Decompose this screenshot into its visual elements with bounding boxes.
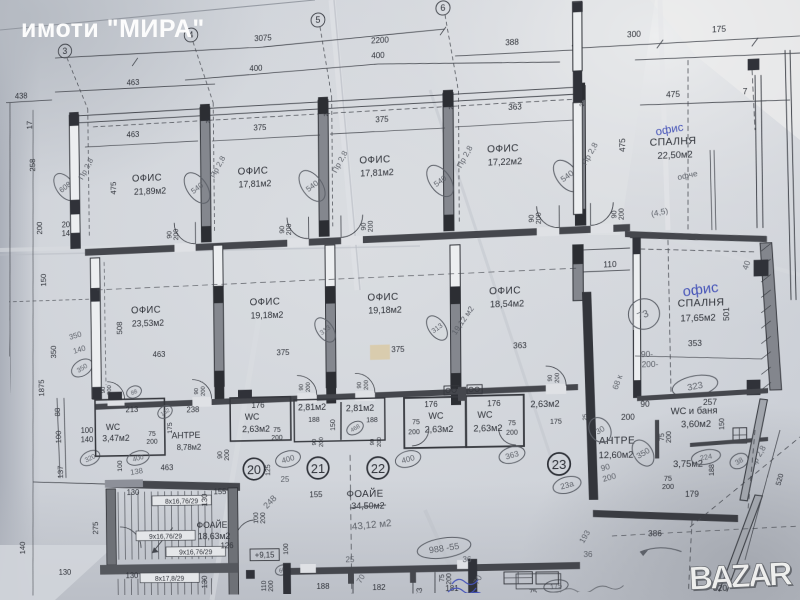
svg-text:150: 150 [330,419,337,431]
svg-text:3,75м2: 3,75м2 [673,458,703,469]
svg-text:3: 3 [63,46,68,56]
svg-text:Пр 2,8: Пр 2,8 [330,149,350,174]
svg-text:388: 388 [505,37,519,47]
svg-text:8x16,76/29: 8x16,76/29 [165,498,198,506]
svg-text:988 -55: 988 -55 [428,541,460,556]
svg-text:WC: WC [428,411,443,422]
svg-text:130: 130 [200,493,209,506]
svg-text:ФОАЙЕ: ФОАЙЕ [346,487,383,500]
svg-text:375: 375 [391,345,404,355]
svg-text:200: 200 [224,449,231,461]
svg-text:90: 90 [370,439,376,446]
svg-text:90: 90 [640,399,649,409]
svg-text:25: 25 [281,475,290,484]
svg-text:130: 130 [59,568,72,577]
svg-text:350: 350 [76,363,89,375]
svg-text:313: 313 [431,322,445,335]
svg-text:110: 110 [603,259,616,269]
svg-text:200: 200 [319,437,325,447]
svg-text:540: 540 [304,178,320,193]
svg-text:Пр 2,8: Пр 2,8 [455,144,475,169]
svg-text:323: 323 [686,379,704,393]
svg-text:ФОАЙЕ: ФОАЙЕ [197,519,228,531]
svg-text:140: 140 [18,542,27,555]
svg-text:155: 155 [309,490,322,499]
svg-text:200: 200 [260,512,267,524]
svg-text:8,78м2: 8,78м2 [177,443,202,453]
svg-text:375: 375 [375,114,388,124]
svg-text:400: 400 [281,453,296,466]
svg-text:СПАЛНЯ: СПАЛНЯ [678,297,725,310]
svg-text:36: 36 [462,555,471,564]
svg-text:182: 182 [372,583,385,592]
svg-text:19,18м2: 19,18м2 [368,304,402,315]
svg-text:17,81м2: 17,81м2 [360,167,394,179]
svg-text:150: 150 [719,418,727,430]
svg-text:WC: WC [477,409,492,420]
svg-text:179: 179 [685,489,699,499]
svg-text:475: 475 [666,89,680,99]
svg-text:25: 25 [324,110,330,117]
svg-text:200: 200 [618,208,626,220]
svg-text:200: 200 [35,221,44,234]
svg-text:68 к: 68 к [610,373,625,391]
svg-text:475: 475 [617,138,627,152]
svg-text:175: 175 [550,419,562,427]
svg-text:ОФИС: ОФИС [487,143,519,156]
svg-text:2,63м2: 2,63м2 [530,398,560,409]
svg-text:258: 258 [28,158,37,171]
svg-text:Пр 2,8: Пр 2,8 [208,154,227,179]
svg-text:188: 188 [316,582,329,591]
svg-text:150: 150 [39,274,48,287]
svg-text:70: 70 [355,573,367,585]
svg-text:200: 200 [601,471,617,484]
svg-text:20: 20 [247,462,261,477]
svg-text:200: 200 [662,484,674,492]
svg-text:90-: 90- [641,349,654,359]
svg-text:400: 400 [400,453,415,466]
svg-text:375: 375 [276,348,289,358]
svg-text:200: 200 [621,412,635,422]
svg-text:6: 6 [440,2,445,13]
svg-text:130: 130 [200,576,209,589]
svg-text:520: 520 [775,473,786,487]
svg-text:2,81м2: 2,81м2 [298,401,326,412]
svg-text:25: 25 [449,103,455,110]
svg-text:125: 125 [265,464,272,476]
svg-text:130: 130 [126,571,139,580]
svg-text:176: 176 [251,401,264,411]
svg-text:438: 438 [15,91,28,101]
svg-text:353: 353 [688,338,702,348]
svg-text:400: 400 [371,50,384,60]
svg-text:17,65м2: 17,65м2 [680,312,716,324]
svg-text:363: 363 [504,449,520,462]
svg-text:300: 300 [627,29,641,39]
svg-text:АНТРЕ: АНТРЕ [172,430,201,441]
svg-text:ОФИС: ОФИС [359,154,390,167]
svg-text:17,22м2: 17,22м2 [488,156,523,168]
svg-text:73: 73 [636,308,651,323]
svg-text:200-: 200- [642,359,659,369]
svg-text:200: 200 [306,382,312,392]
svg-text:22,50м2: 22,50м2 [657,149,693,161]
svg-text:ОФИС: ОФИС [131,304,161,316]
svg-text:475: 475 [109,181,118,194]
svg-text:275: 275 [91,522,100,535]
svg-text:1875: 1875 [37,379,46,396]
svg-text:75: 75 [148,431,156,438]
svg-text:90: 90 [194,388,200,395]
svg-text:18,63м2: 18,63м2 [198,531,231,542]
svg-text:200: 200 [268,580,275,592]
svg-text:38: 38 [734,456,745,467]
svg-text:90: 90 [101,387,107,394]
svg-text:25: 25 [206,117,212,124]
svg-text:100: 100 [283,543,290,555]
svg-text:350: 350 [49,345,58,358]
svg-text:175: 175 [712,24,726,34]
svg-text:ОФИС: ОФИС [489,285,521,298]
svg-text:200: 200 [408,429,420,437]
svg-text:200: 200 [367,220,374,232]
svg-text:36: 36 [583,550,592,560]
svg-text:200: 200 [146,439,157,446]
svg-text:88: 88 [130,389,138,397]
svg-text:463: 463 [161,463,174,472]
svg-text:188: 188 [708,464,716,476]
svg-text:400: 400 [249,63,262,73]
svg-text:75: 75 [273,427,281,434]
svg-text:75: 75 [664,476,672,484]
svg-text:100: 100 [117,460,124,472]
svg-text:200: 200 [201,386,207,396]
svg-text:200: 200 [286,223,293,235]
svg-text:463: 463 [127,130,140,140]
svg-text:463: 463 [153,350,166,360]
svg-text:офче: офче [677,168,699,182]
svg-text:3,47м2: 3,47м2 [102,433,129,444]
svg-text:193: 193 [577,529,592,545]
svg-text:138: 138 [130,466,144,477]
svg-text:90: 90 [299,384,305,391]
svg-text:17,81м2: 17,81м2 [239,178,272,190]
svg-text:90: 90 [312,439,318,446]
svg-text:23а: 23а [559,479,575,492]
svg-text:(4,5): (4,5) [650,206,669,219]
svg-text:18,54м2: 18,54м2 [490,298,524,310]
svg-text:200: 200 [555,373,561,383]
svg-text:200: 200 [377,437,383,447]
svg-text:224: 224 [699,453,713,463]
svg-text:140: 140 [72,343,87,355]
svg-text:75: 75 [508,420,516,428]
svg-text:350: 350 [635,446,652,461]
svg-text:188: 188 [366,417,378,425]
svg-text:257: 257 [703,397,717,407]
svg-text:350: 350 [68,329,83,341]
svg-text:463: 463 [127,78,140,88]
svg-text:238: 238 [187,405,200,414]
svg-text:WC: WC [106,422,120,432]
svg-text:2,63м2: 2,63м2 [473,422,502,433]
svg-text:40: 40 [740,259,753,271]
svg-text:213: 213 [126,405,139,414]
svg-text:23: 23 [552,457,567,472]
svg-text:188: 188 [308,417,320,424]
svg-text:200: 200 [666,431,674,443]
svg-text:200: 200 [506,430,518,438]
svg-text:АНТРЕ: АНТРЕ [599,435,635,447]
svg-text:375: 375 [253,122,266,132]
svg-text:100: 100 [81,426,94,435]
svg-text:ОФИС: ОФИС [132,172,162,185]
svg-text:ОФИС: ОФИС [238,165,269,178]
svg-text:200: 200 [271,435,283,442]
svg-text:25: 25 [580,100,587,107]
svg-text:ОФИС: ОФИС [250,296,281,308]
svg-text:2,81м2: 2,81м2 [346,402,375,413]
svg-text:BAZAR: BAZAR [688,554,793,596]
svg-text:3075: 3075 [254,33,271,43]
svg-text:248: 248 [261,493,279,511]
svg-text:176: 176 [424,400,437,410]
svg-text:22: 22 [371,461,386,476]
svg-text:200: 200 [173,228,180,240]
svg-text:9х16,76/29: 9х16,76/29 [179,549,213,556]
svg-text:363: 363 [508,102,522,112]
svg-text:+9,15: +9,15 [255,550,275,559]
svg-text:126: 126 [221,541,234,550]
svg-text:508: 508 [115,321,124,334]
svg-text:90: 90 [357,382,363,389]
svg-text:2200: 2200 [371,35,389,45]
svg-text:12,60м2: 12,60м2 [599,449,634,460]
svg-text:WC: WC [245,412,260,423]
svg-text:8х17,8/29: 8х17,8/29 [155,575,185,582]
svg-text:43,12 м2: 43,12 м2 [351,518,392,533]
svg-text:200: 200 [535,212,543,224]
svg-text:21: 21 [311,461,325,476]
svg-text:501: 501 [721,307,731,321]
svg-text:5: 5 [315,14,320,25]
svg-text:90: 90 [548,375,554,382]
svg-text:17: 17 [25,121,34,130]
svg-text:75: 75 [412,419,420,426]
svg-text:3,60м2: 3,60м2 [681,418,711,429]
svg-text:130: 130 [127,488,140,497]
svg-text:19,18м2: 19,18м2 [251,309,284,320]
svg-text:23,53м2: 23,53м2 [132,317,164,328]
svg-text:363: 363 [513,340,527,350]
svg-text:200: 200 [364,380,370,390]
svg-text:137: 137 [56,466,65,479]
svg-text:7: 7 [743,86,748,96]
svg-text:140: 140 [81,435,94,444]
svg-text:ОФИС: ОФИС [367,291,398,303]
svg-text:2,63м2: 2,63м2 [242,424,270,435]
svg-text:21,89м2: 21,89м2 [134,185,167,197]
svg-text:176: 176 [487,398,501,408]
svg-text:9x16,76/29: 9x16,76/29 [149,533,182,540]
svg-text:155: 155 [214,487,227,496]
svg-text:25: 25 [346,555,355,564]
